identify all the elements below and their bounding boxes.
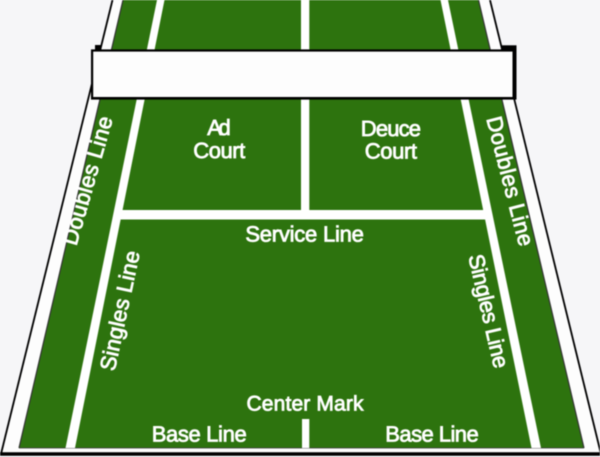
svg-text:Ad: Ad xyxy=(207,115,230,140)
svg-text:Base Line: Base Line xyxy=(385,422,478,447)
svg-text:Court: Court xyxy=(365,139,417,164)
svg-text:Base Line: Base Line xyxy=(152,422,247,447)
svg-text:Center Mark: Center Mark xyxy=(247,393,365,416)
svg-text:Deuce: Deuce xyxy=(361,116,421,141)
svg-text:Service Line: Service Line xyxy=(245,222,364,247)
svg-text:Court: Court xyxy=(193,138,245,163)
